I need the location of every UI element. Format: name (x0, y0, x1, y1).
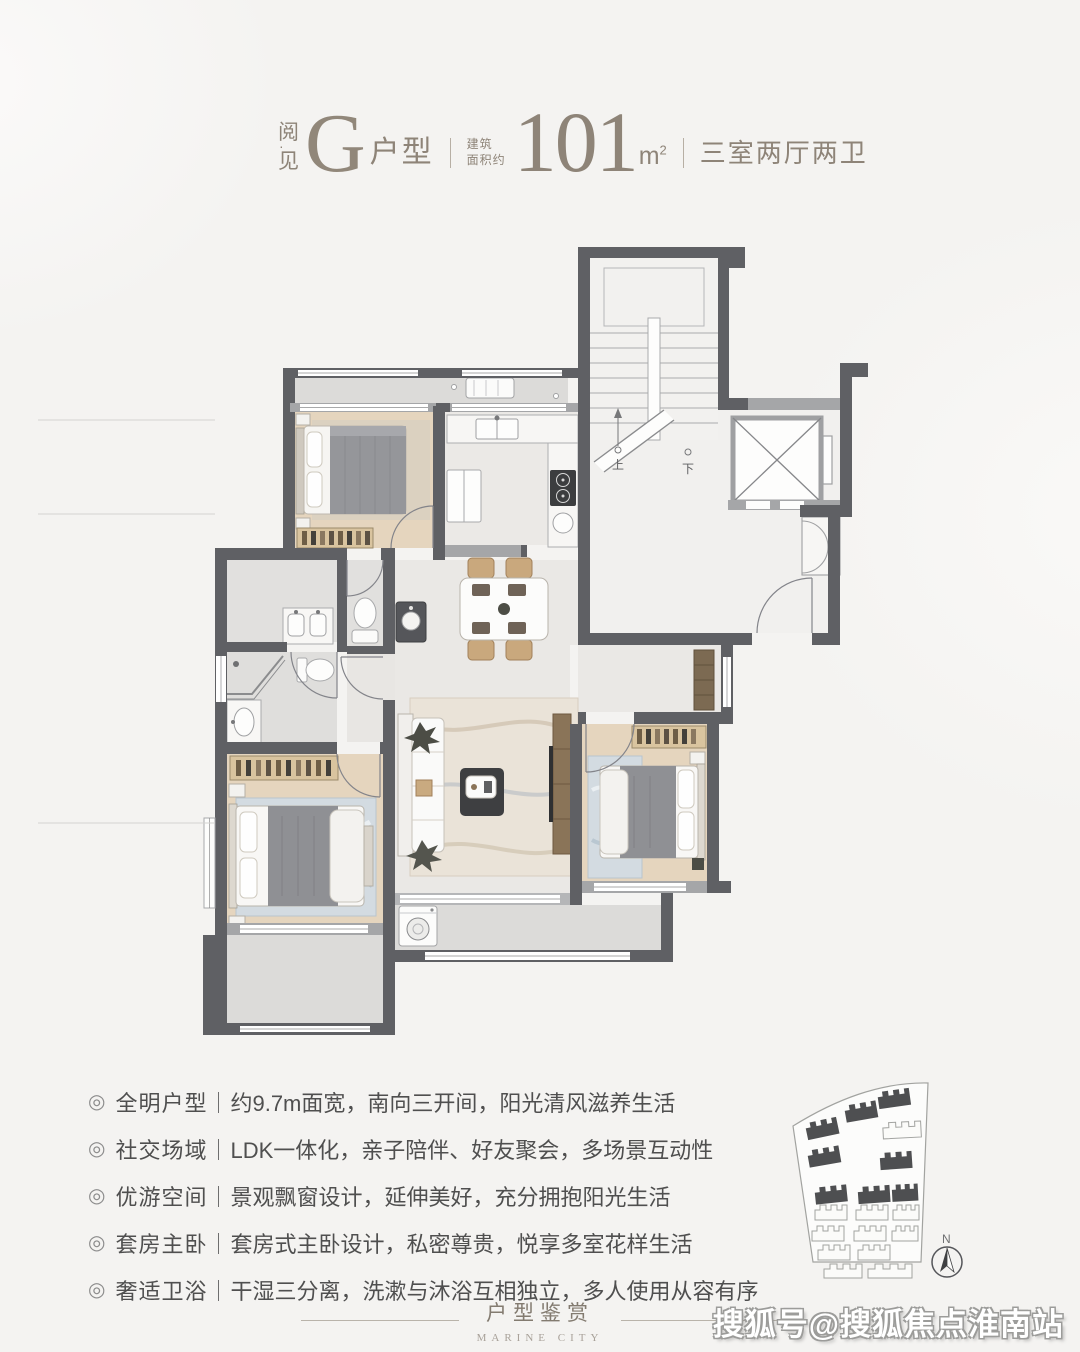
sofa (398, 714, 444, 856)
double-vanity (283, 608, 333, 644)
doors (291, 506, 812, 797)
rug (312, 420, 430, 520)
bath-master (227, 656, 334, 744)
floor-fills (215, 258, 840, 1023)
kitchen-sink (476, 416, 518, 440)
bed-bench (364, 826, 373, 886)
fridge (447, 470, 481, 522)
stairwell: 上 下 (590, 268, 718, 476)
feature-title: 全明户型 (115, 1086, 207, 1118)
plant (692, 858, 704, 870)
bed (229, 804, 364, 908)
header: 阅 · 见 G 户型 建筑 面积约 101 m2 三室两厅两卫 (278, 102, 868, 174)
feature-desc: 套房式主卧设计，私密尊贵，悦享多室花样生活 (230, 1227, 692, 1259)
unit-letter: G (305, 113, 366, 174)
feature-list: ◎ 全明户型 约9.7m面宽，南向三开间，阳光清风滋养生活 ◎ 社交场域 LDK… (88, 1086, 758, 1306)
toilet (297, 658, 334, 682)
bedroom-east (588, 726, 706, 878)
area-unit: m2 (639, 142, 667, 171)
dining-chair (468, 558, 494, 578)
area-label: 建筑 面积约 (467, 136, 506, 168)
nightstand (690, 752, 705, 764)
hall-cabinet (694, 650, 714, 710)
site-map: N (793, 1083, 962, 1278)
unit-suffix: 户型 (370, 127, 434, 171)
dining-chair (468, 640, 494, 660)
site-buildings-highlighted (805, 1088, 919, 1205)
feature-title: 优游空间 (115, 1180, 207, 1212)
nightstand (229, 784, 245, 797)
wardrobe (297, 528, 373, 548)
bedroom-master (229, 756, 376, 929)
hall-washstand (396, 602, 426, 642)
wardrobe (632, 726, 706, 748)
window-lines (210, 373, 728, 1029)
nightstand (229, 916, 245, 929)
vent-dot (554, 394, 559, 399)
floorplan-poster: { "header": { "series": {"top": "阅", "do… (0, 0, 1080, 1352)
bullet-icon: ◎ (88, 1092, 105, 1112)
footer-title: 户型鉴赏 (477, 1297, 604, 1327)
side-table (416, 780, 432, 796)
feature-desc: 景观飘窗设计，延伸美好，充分拥抱阳光生活 (230, 1180, 670, 1212)
feature-divider (218, 1092, 219, 1113)
dimension-lines (38, 420, 215, 823)
rug (236, 798, 376, 916)
prep-sink (553, 513, 573, 533)
bed (296, 426, 406, 514)
bath-guest (283, 598, 426, 644)
feature-item: ◎ 全明户型 约9.7m面宽，南向三开间，阳光清风滋养生活 (88, 1086, 758, 1118)
vanity-sink (227, 700, 261, 744)
feature-divider (218, 1186, 219, 1207)
south-balconies (399, 906, 437, 946)
area-value: 101 (514, 112, 637, 174)
coffee-table (460, 768, 504, 816)
walls (203, 247, 868, 1035)
bullet-icon: ◎ (88, 1233, 105, 1253)
nightstand (296, 518, 310, 529)
entry-closet (802, 517, 840, 575)
stairs-down-label: 下 (682, 462, 694, 476)
feature-divider (218, 1139, 219, 1160)
footer-line-left (301, 1320, 459, 1321)
elevator (728, 418, 840, 510)
rug (410, 698, 578, 876)
dining-chair (506, 640, 532, 660)
centerpiece (498, 603, 510, 615)
feature-item: ◎ 社交场域 LDK一体化，亲子陪伴、好友聚会，多场景互动性 (88, 1133, 758, 1165)
header-divider-2 (683, 138, 684, 168)
toilet (352, 598, 378, 643)
plant (404, 722, 440, 754)
series-name: 阅 · 见 (278, 122, 299, 172)
feature-item: ◎ 优游空间 景观飘窗设计，延伸美好，充分拥抱阳光生活 (88, 1180, 758, 1212)
feature-desc: LDK一体化，亲子陪伴、好友聚会，多场景互动性 (230, 1133, 713, 1165)
feature-divider (218, 1233, 219, 1254)
header-divider-1 (450, 138, 451, 168)
kitchen (447, 415, 578, 547)
bed (600, 764, 705, 860)
wardrobe (230, 756, 338, 780)
dining-area (460, 558, 548, 660)
rug (588, 756, 642, 878)
living-room (398, 698, 578, 876)
bedroom-north (296, 414, 430, 548)
stairs-up-label: 上 (612, 458, 624, 472)
feature-item: ◎ 套房主卧 套房式主卧设计，私密尊贵，悦享多室花样生活 (88, 1227, 758, 1259)
feature-title: 套房主卧 (115, 1227, 207, 1259)
watermark: 搜狐号@搜狐焦点淮南站 (713, 1299, 1064, 1344)
feature-desc: 约9.7m面宽，南向三开间，阳光清风滋养生活 (230, 1086, 675, 1118)
dining-chair (506, 558, 532, 578)
compass-icon: N (932, 1232, 962, 1277)
bullet-icon: ◎ (88, 1186, 105, 1206)
compass-north-label: N (942, 1232, 951, 1246)
footer-subtitle: MARINE CITY (477, 1332, 604, 1344)
dining-table (460, 578, 548, 640)
vent-dot (452, 385, 457, 390)
nightstand (296, 414, 310, 425)
stove (550, 470, 576, 506)
series-bottom: 见 (278, 151, 299, 172)
plant (406, 840, 442, 872)
north-balcony (452, 378, 559, 399)
tv-console (549, 714, 571, 854)
rooms-text: 三室两厅两卫 (700, 133, 868, 170)
bullet-icon: ◎ (88, 1139, 105, 1159)
feature-title: 社交场域 (115, 1133, 207, 1165)
tv-screen (549, 746, 553, 822)
washing-machine (399, 906, 437, 946)
site-buildings-outline (812, 1121, 921, 1278)
shower (227, 656, 285, 699)
